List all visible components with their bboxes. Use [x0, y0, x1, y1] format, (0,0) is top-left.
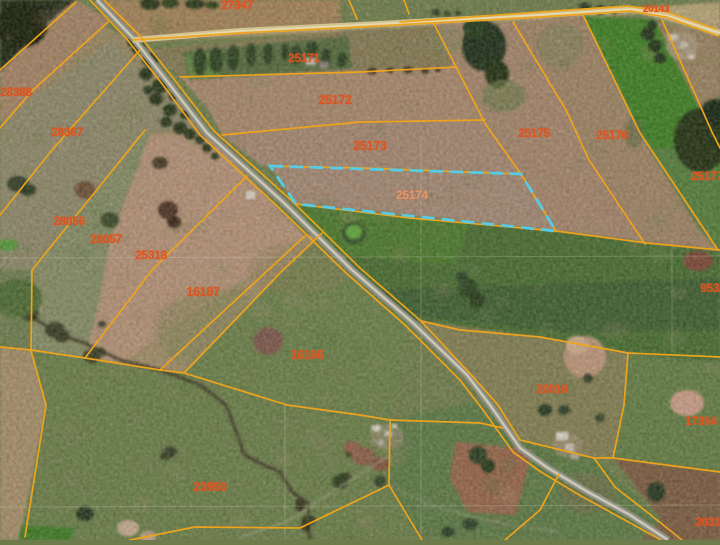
- svg-text:25174: 25174: [396, 188, 428, 202]
- svg-text:17354: 17354: [685, 414, 717, 428]
- svg-text:25172: 25172: [318, 93, 352, 107]
- svg-text:20016: 20016: [536, 382, 568, 396]
- svg-text:25318: 25318: [135, 248, 167, 262]
- svg-text:28388: 28388: [0, 85, 32, 99]
- svg-text:23950: 23950: [193, 480, 227, 494]
- svg-text:20143: 20143: [643, 4, 670, 15]
- svg-text:25171: 25171: [288, 51, 320, 65]
- svg-text:16187: 16187: [186, 285, 220, 299]
- svg-text:25175: 25175: [518, 126, 550, 140]
- svg-text:28057: 28057: [90, 232, 122, 246]
- svg-text:27347: 27347: [221, 0, 253, 12]
- svg-text:16166: 16166: [290, 348, 324, 362]
- svg-text:28056: 28056: [53, 214, 85, 228]
- svg-text:25176: 25176: [596, 128, 628, 142]
- svg-text:25173: 25173: [353, 139, 387, 153]
- svg-text:9532: 9532: [700, 281, 720, 295]
- svg-text:28367: 28367: [51, 125, 83, 139]
- svg-text:20319: 20319: [695, 515, 720, 529]
- svg-text:25177: 25177: [691, 169, 720, 183]
